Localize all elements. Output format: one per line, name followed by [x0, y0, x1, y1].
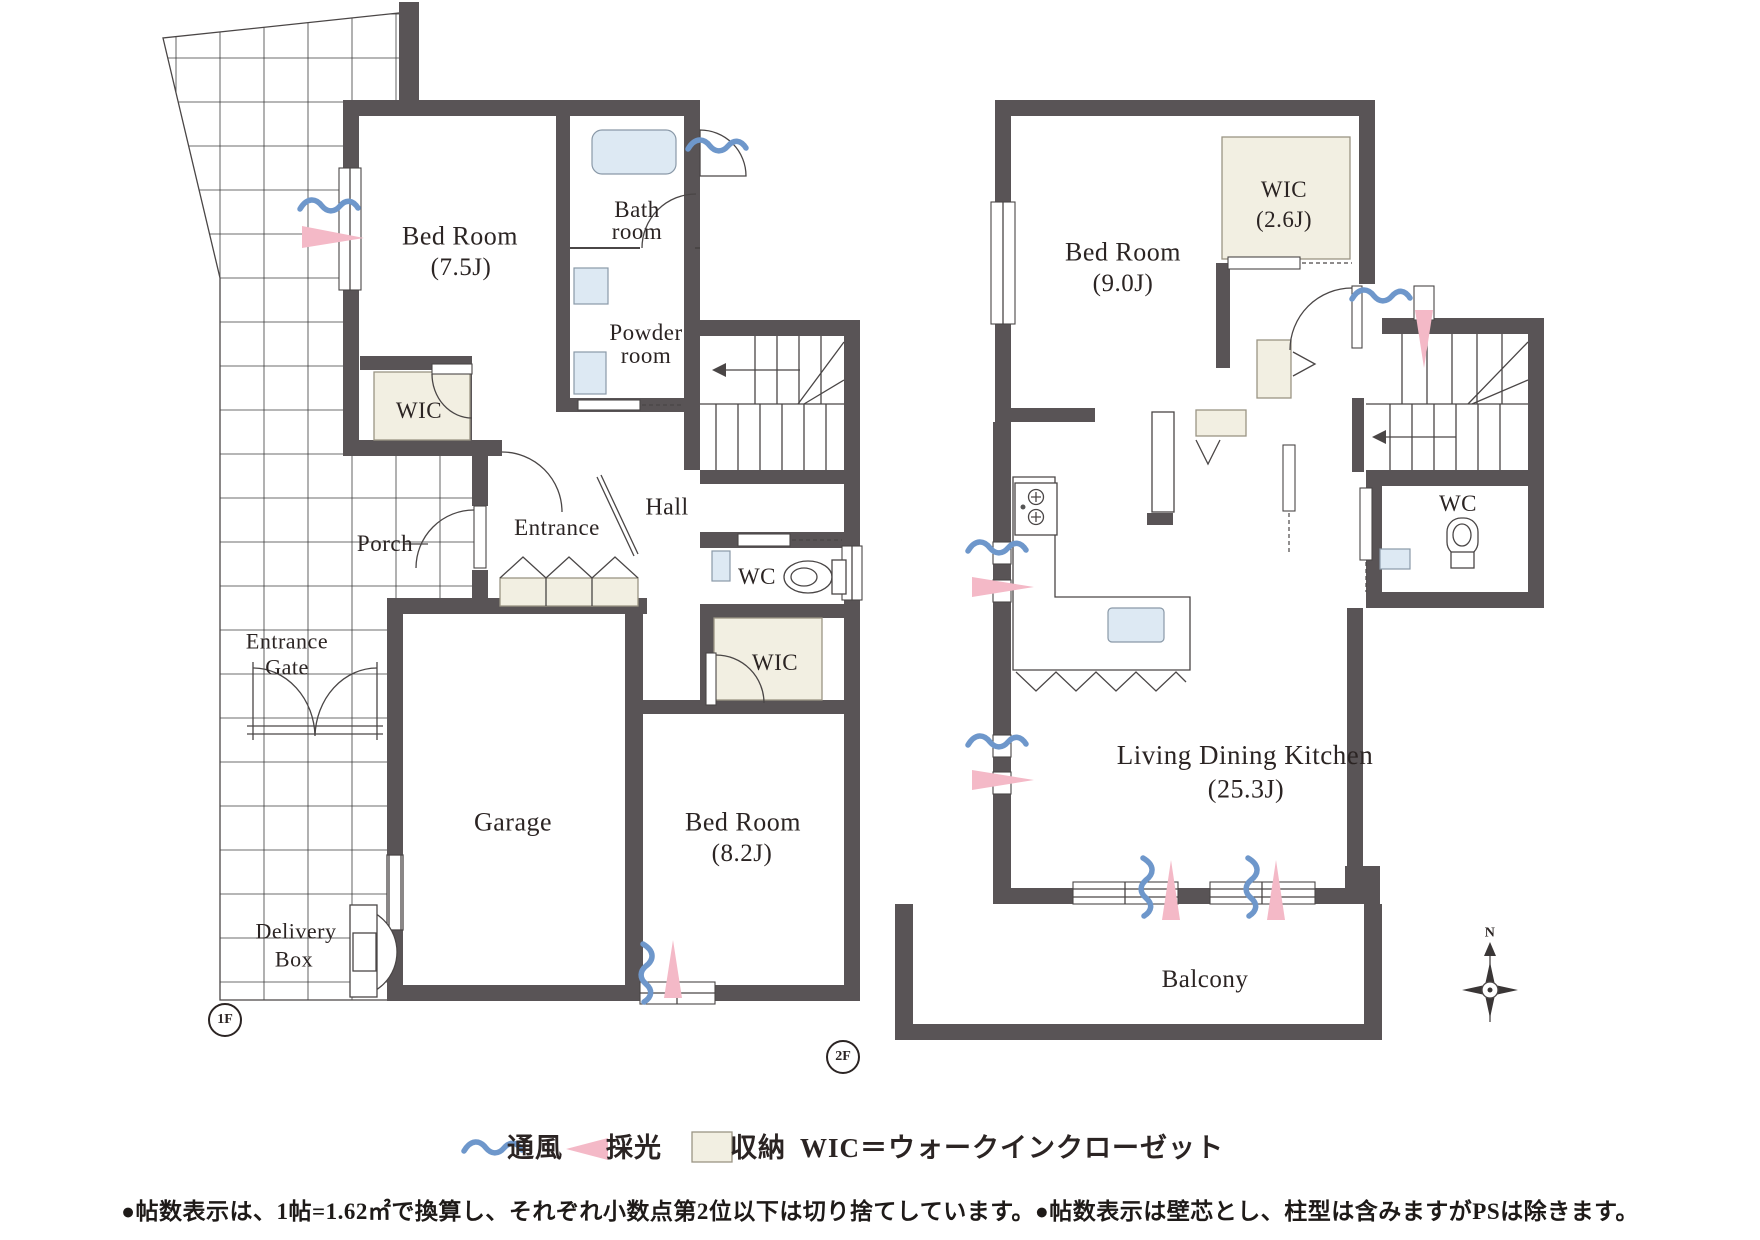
room-label-bathroom-2: room [612, 220, 663, 244]
footnote: ●帖数表示は、1帖=1.62㎡で換算し、それぞれ小数点第2位以下は切り捨てしてい… [0, 1192, 1760, 1226]
floorplan-graphic [0, 0, 1760, 1240]
toilet-tank-2f [1451, 552, 1474, 568]
bath-vent-door [700, 130, 746, 176]
room-label-wic2: WIC [752, 651, 798, 675]
daylight-icon [1415, 310, 1433, 368]
kitchen-storage [1196, 410, 1246, 436]
room-size-bedroom3: (9.0J) [1093, 271, 1154, 297]
room-label-bedroom1: Bed Room [402, 222, 518, 249]
room-size-wic3: (2.6J) [1256, 208, 1312, 232]
room-label-bedroom2: Bed Room [685, 808, 801, 835]
label-entrance-gate-2: Gate [265, 655, 309, 678]
stair-arrow-2f [1372, 430, 1386, 444]
storage-legend-icon [692, 1132, 732, 1162]
hall-closet [1257, 340, 1291, 398]
tall-cabinet [1152, 412, 1174, 512]
site-boundary-line [163, 12, 408, 1000]
room-size-bedroom1: (7.5J) [431, 255, 492, 281]
legend-daylight-label: 採光 [606, 1134, 662, 1162]
floor2-stairs [1366, 334, 1528, 470]
room-label-wc2: WC [1439, 492, 1477, 516]
room-label-garage: Garage [474, 808, 552, 835]
label-entrance-gate-1: Entrance [246, 629, 328, 652]
room-label-balcony: Balcony [1162, 967, 1249, 993]
daylight-icon [664, 940, 682, 998]
room-label-wic1: WIC [396, 399, 442, 423]
daylight-legend-icon [566, 1138, 608, 1160]
kitchen-sink [1108, 608, 1164, 642]
counter-edge-zigzag [1016, 672, 1186, 691]
label-delivery-box-1: Delivery [256, 919, 337, 942]
floor1-badge: 1F [208, 1003, 242, 1037]
floor2-badge: 2F [826, 1040, 860, 1074]
label-delivery-box-2: Box [275, 947, 313, 970]
shoe-cabinet [500, 578, 638, 606]
legend-icons [464, 1132, 732, 1162]
legend-storage-label: 収納 [730, 1134, 786, 1162]
wc2-sink [1380, 549, 1410, 569]
compass-north-label: N [1485, 927, 1496, 942]
floor1-stairs [700, 336, 844, 470]
stair-arrow [712, 363, 726, 377]
room-label-wic3: WIC [1261, 178, 1307, 202]
room-label-ldk: Living Dining Kitchen [1117, 741, 1373, 769]
room-label-bedroom3: Bed Room [1065, 238, 1181, 265]
room-label-entrance: Entrance [514, 516, 600, 540]
room-label-powder-1: Powder [609, 321, 682, 345]
room-size-bedroom2: (8.2J) [712, 841, 773, 867]
wc-sink [712, 551, 730, 581]
toilet-tank [832, 560, 846, 594]
site-wall-stub [399, 2, 419, 100]
room-label-wc1: WC [738, 565, 776, 589]
room-label-hall: Hall [645, 495, 688, 520]
front-door-arc [416, 510, 474, 568]
washer-space [574, 352, 606, 394]
bedroom1-door-arc [502, 452, 562, 512]
shoe-cabinet-zigzag [500, 557, 638, 578]
powder-sink [574, 268, 608, 304]
floorplan-page: Bed Room (7.5J) Bath room Powder room WI… [0, 0, 1760, 1240]
approach-tile-area [163, 2, 484, 1002]
legend-vent-label: 通風 [507, 1134, 563, 1162]
bedroom-door-arc-2f [1290, 288, 1352, 350]
entrance-step-line [597, 475, 638, 556]
bathtub [592, 130, 676, 174]
room-label-porch: Porch [357, 532, 413, 556]
room-label-powder-2: room [621, 344, 672, 368]
room-size-ldk: (25.3J) [1208, 775, 1284, 802]
compass-icon [1462, 942, 1518, 1022]
legend-wic-definition: WIC＝ウォークインクローゼット [800, 1134, 1224, 1162]
floor1-env-icons [300, 140, 746, 1002]
floor2-doors [1228, 257, 1372, 592]
